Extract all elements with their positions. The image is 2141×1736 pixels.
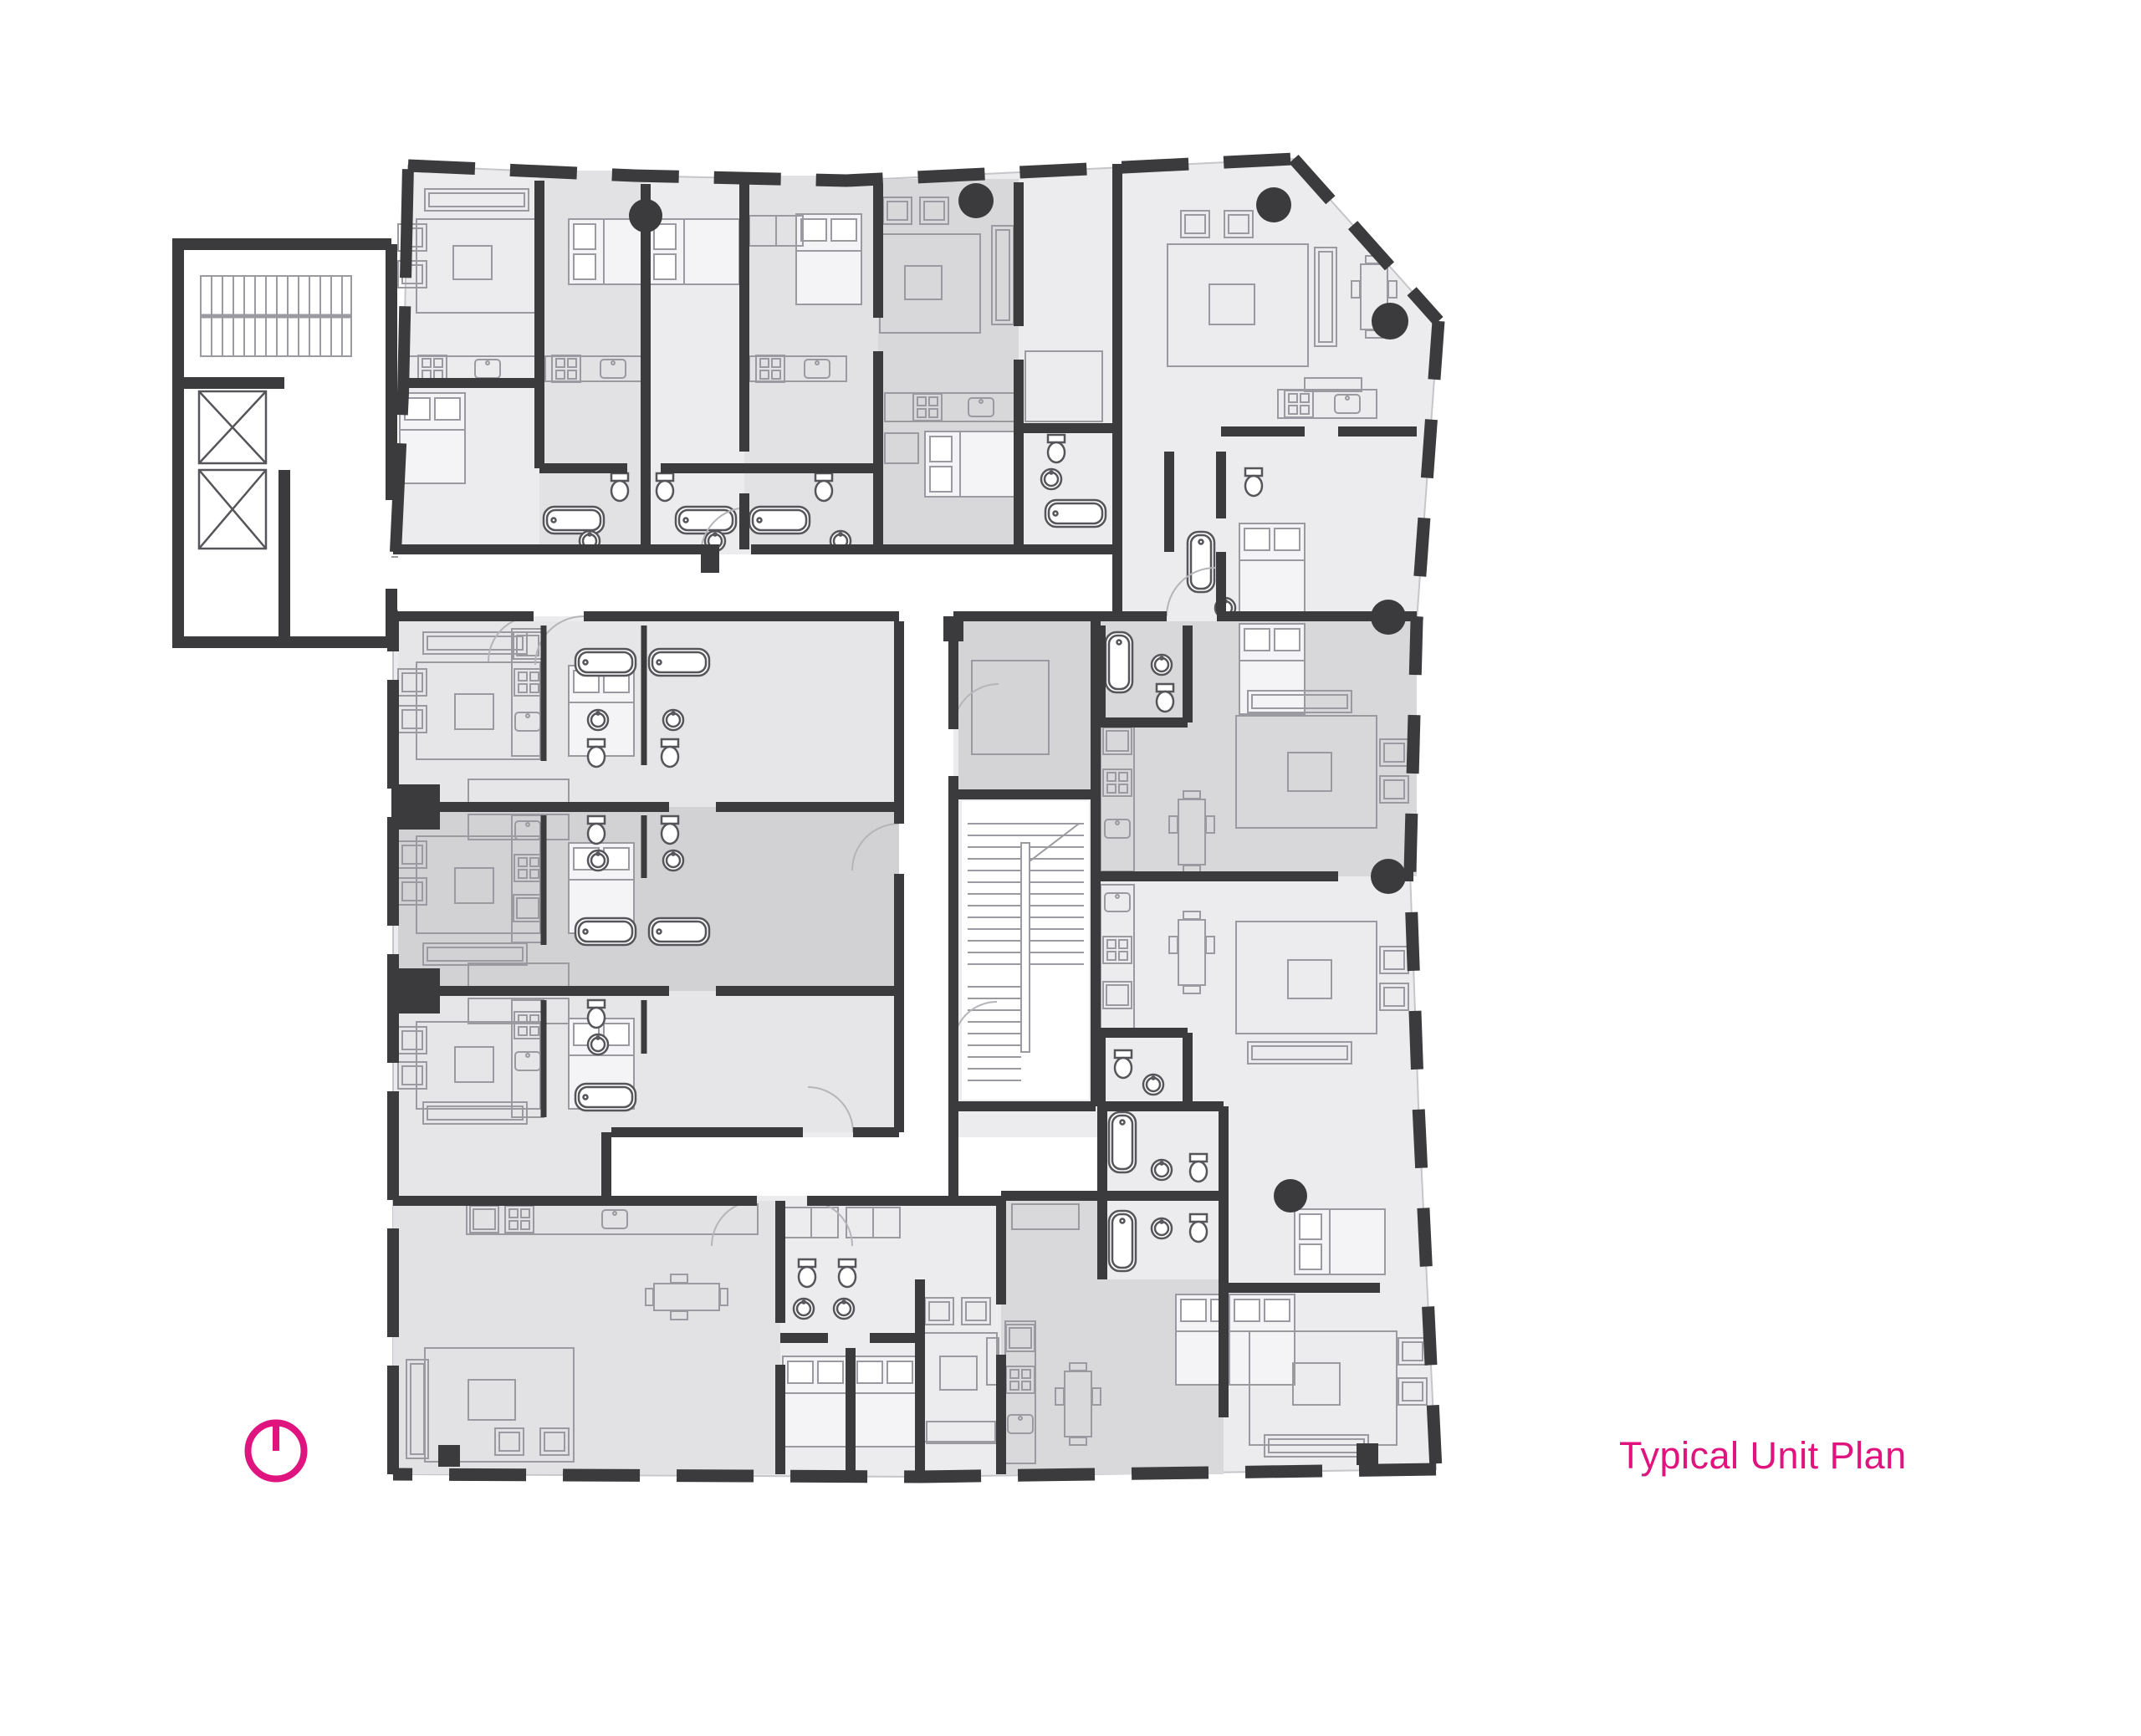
sink bbox=[794, 1299, 814, 1319]
round-column bbox=[1371, 859, 1406, 894]
bed bbox=[852, 1356, 917, 1447]
bathtub bbox=[676, 507, 736, 534]
square-column bbox=[1357, 1443, 1378, 1465]
toilet bbox=[1115, 1050, 1132, 1078]
toilet bbox=[588, 739, 605, 767]
toilet bbox=[839, 1259, 856, 1287]
round-column bbox=[1372, 303, 1408, 340]
bed bbox=[1239, 523, 1305, 614]
toilet bbox=[1048, 435, 1065, 462]
round-column bbox=[1371, 600, 1406, 635]
toilet bbox=[588, 816, 605, 844]
sink bbox=[1152, 1218, 1172, 1238]
sink bbox=[1152, 655, 1172, 675]
plan-title: Typical Unit Plan bbox=[1619, 1434, 1907, 1477]
sink bbox=[588, 850, 608, 871]
sink bbox=[588, 1034, 608, 1054]
toilet bbox=[815, 473, 832, 501]
sink bbox=[1041, 469, 1061, 489]
bed bbox=[783, 1356, 848, 1447]
bathtub bbox=[1045, 500, 1106, 527]
bed bbox=[400, 393, 465, 483]
bed bbox=[925, 431, 1015, 497]
toilet bbox=[1190, 1154, 1207, 1182]
toilet bbox=[1245, 468, 1262, 496]
toilet bbox=[611, 473, 628, 501]
toilet bbox=[662, 816, 678, 844]
bed bbox=[1229, 1294, 1295, 1385]
bathtub bbox=[1106, 632, 1132, 692]
sink bbox=[663, 850, 683, 871]
bathtub bbox=[649, 649, 709, 676]
bathtub bbox=[575, 918, 636, 945]
bathtub bbox=[1188, 532, 1214, 592]
floor-plan-drawing: Typical Unit Plan bbox=[0, 0, 2141, 1736]
room-midleft-3 bbox=[398, 991, 899, 1132]
corridor-upper bbox=[387, 554, 1122, 616]
square-column bbox=[438, 1445, 460, 1467]
toilet bbox=[1157, 684, 1173, 712]
corridor-vertical bbox=[899, 616, 953, 1202]
bathtub bbox=[544, 507, 604, 534]
room-vestibule bbox=[958, 621, 1091, 794]
toilet bbox=[662, 739, 678, 767]
floor-plan-page: Typical Unit Plan bbox=[0, 0, 2141, 1736]
sink bbox=[1152, 1160, 1172, 1180]
bathtub bbox=[649, 918, 709, 945]
round-column bbox=[958, 183, 994, 218]
round-column bbox=[629, 199, 662, 232]
bathtub bbox=[1109, 1112, 1136, 1172]
bathtub bbox=[575, 1084, 636, 1111]
room-midleft-3b bbox=[398, 1132, 606, 1201]
sink bbox=[834, 1299, 854, 1319]
toilet bbox=[1190, 1214, 1207, 1242]
toilet bbox=[799, 1259, 815, 1287]
bathtub bbox=[575, 649, 636, 676]
toilet bbox=[657, 473, 673, 501]
north-arrow-icon bbox=[248, 1422, 304, 1479]
round-column bbox=[1274, 1179, 1307, 1213]
bed bbox=[1295, 1209, 1385, 1274]
sink bbox=[1143, 1075, 1163, 1095]
bed bbox=[796, 214, 861, 304]
room-bottomleft bbox=[393, 1201, 780, 1474]
sink bbox=[663, 710, 683, 730]
bathtub bbox=[1109, 1211, 1136, 1271]
bed bbox=[1239, 624, 1305, 714]
sink bbox=[588, 710, 608, 730]
corridor-lower bbox=[606, 1137, 1102, 1196]
bathtub bbox=[749, 507, 810, 534]
bed bbox=[649, 219, 739, 284]
round-column bbox=[1256, 187, 1291, 222]
toilet bbox=[588, 1000, 605, 1028]
